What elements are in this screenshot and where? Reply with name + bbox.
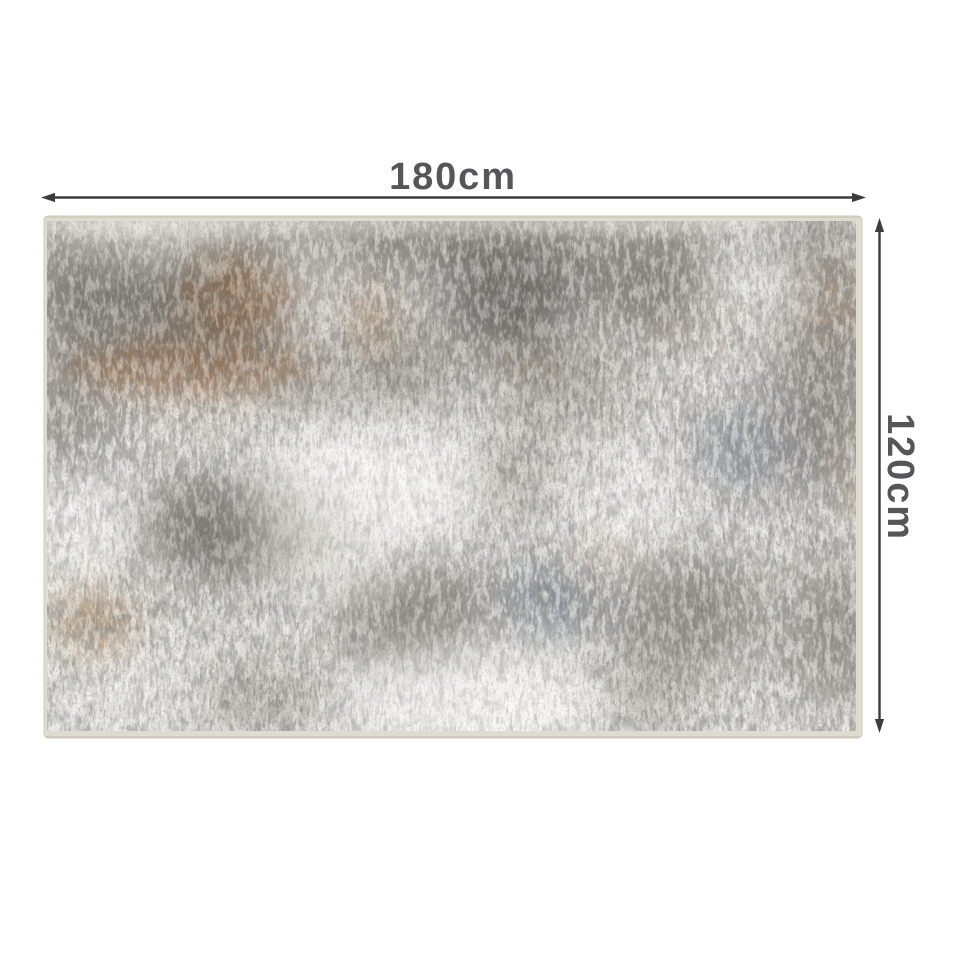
svg-text:180cm: 180cm [389,156,517,198]
svg-text:120cm: 120cm [879,413,921,541]
